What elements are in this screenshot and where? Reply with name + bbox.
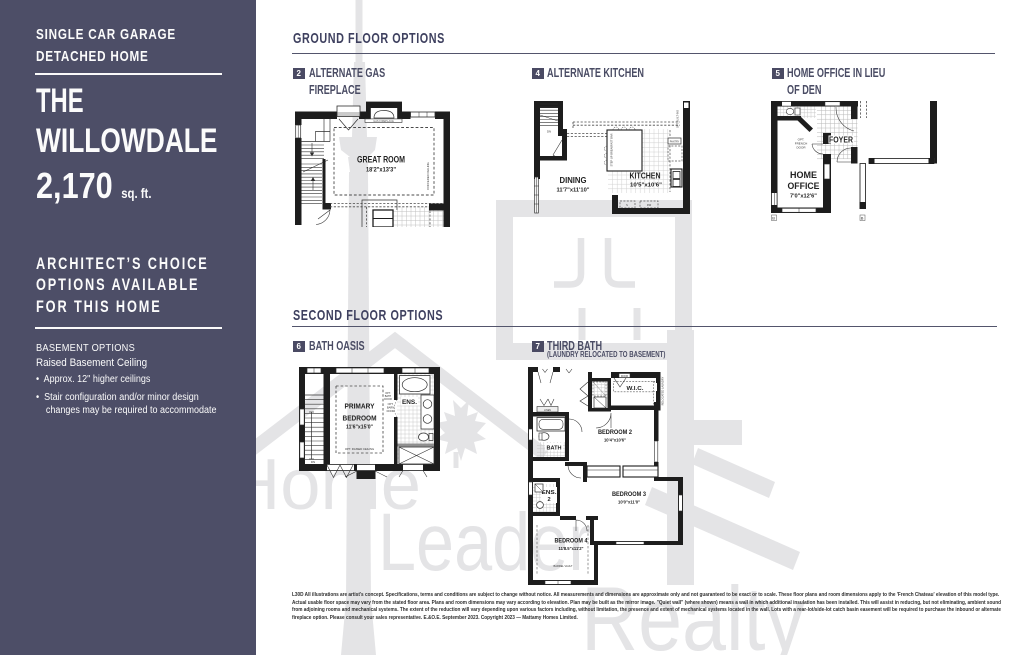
svg-text:7'0"x12'6": 7'0"x12'6" [790,194,817,200]
svg-text:BEDROOM 2: BEDROOM 2 [598,429,632,436]
svg-text:11'6"x15'0": 11'6"x15'0" [346,425,373,431]
svg-text:DINING: DINING [560,176,587,185]
svg-text:10'5"x10'6": 10'5"x10'6" [630,183,662,189]
svg-text:BEDROOM 4: BEDROOM 4 [555,538,588,545]
svg-text:S: S [626,204,628,207]
svg-text:BARREL VAULT: BARREL VAULT [554,564,573,568]
svg-text:OPT. BUILT-INS: OPT. BUILT-INS [677,110,680,128]
svg-text:BARN: BARN [387,406,394,410]
svg-text:PANTRY: PANTRY [670,141,680,144]
svg-text:DOOR: DOOR [384,398,392,401]
svg-text:DN: DN [547,130,551,134]
svg-text:W.I.C.: W.I.C. [627,386,645,392]
svg-text:10'0"x11'0": 10'0"x11'0" [618,500,640,505]
svg-text:BEDROOM: BEDROOM [343,414,377,423]
svg-text:FOYER: FOYER [829,136,853,145]
svg-text:RELOCATED LAUNDRY: RELOCATED LAUNDRY [661,376,665,405]
svg-text:B: B [772,216,775,221]
svg-text:LINEN: LINEN [544,409,551,412]
svg-text:OPT.: OPT. [388,402,394,406]
svg-text:OPT. RAISED CEILING: OPT. RAISED CEILING [345,447,374,451]
svg-text:GREAT ROOM: GREAT ROOM [357,155,405,165]
svg-text:18'2"x13'3": 18'2"x13'3" [366,167,396,174]
svg-text:DOOR: DOOR [387,409,395,413]
svg-text:KITCHEN: KITCHEN [630,172,661,181]
svg-text:BATH: BATH [547,446,562,452]
svg-text:BEDROOM 3: BEDROOM 3 [612,491,646,498]
svg-text:DOOR: DOOR [621,375,628,378]
svg-text:2: 2 [547,497,550,503]
svg-text:B: B [861,216,864,221]
svg-text:DOOR: DOOR [797,146,807,150]
svg-text:ENS.: ENS. [542,490,558,496]
svg-text:10'4"x10'6": 10'4"x10'6" [604,438,626,443]
svg-text:OFFICE: OFFICE [788,181,821,192]
svg-text:DW: DW [647,204,652,207]
svg-text:11'8.5"x11'2": 11'8.5"x11'2" [559,546,584,551]
svg-text:STEP UP BREAKFAST BAR: STEP UP BREAKFAST BAR [610,133,614,166]
svg-text:DN: DN [311,460,315,464]
svg-text:ENS.: ENS. [402,399,417,406]
svg-text:11'7"x11'10": 11'7"x11'10" [557,188,590,194]
svg-text:COFFERED CEILING: COFFERED CEILING [426,162,430,189]
svg-text:PRIMARY: PRIMARY [345,402,375,411]
svg-text:HOME: HOME [790,170,818,181]
svg-text:GAS FIREPLACE: GAS FIREPLACE [373,119,394,123]
